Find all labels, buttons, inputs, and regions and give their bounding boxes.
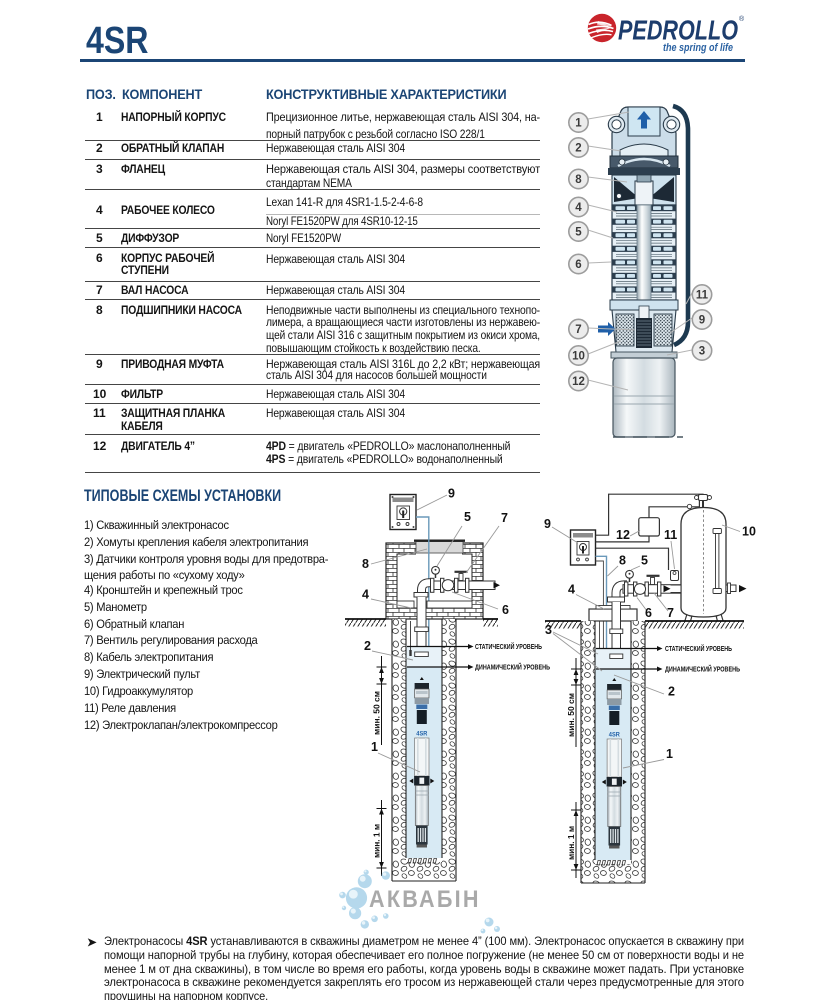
- svg-text:6: 6: [645, 606, 652, 620]
- svg-text:2: 2: [668, 685, 675, 699]
- svg-text:ДИНАМИЧЕСКИЙ УРОВЕНЬ: ДИНАМИЧЕСКИЙ УРОВЕНЬ: [665, 665, 740, 674]
- svg-text:9: 9: [544, 517, 551, 531]
- svg-text:1: 1: [666, 747, 673, 761]
- svg-text:8: 8: [575, 174, 582, 186]
- svg-text:7: 7: [501, 511, 508, 525]
- svg-text:11: 11: [696, 290, 709, 302]
- svg-text:мин. 1 м: мин. 1 м: [372, 824, 382, 858]
- svg-text:11: 11: [664, 528, 677, 542]
- svg-text:1: 1: [575, 118, 582, 130]
- svg-text:2: 2: [575, 143, 581, 155]
- svg-text:4: 4: [362, 588, 369, 602]
- svg-text:7: 7: [575, 324, 581, 336]
- svg-text:9: 9: [448, 487, 455, 501]
- svg-text:8: 8: [362, 557, 369, 571]
- svg-text:5: 5: [464, 510, 471, 524]
- svg-text:10: 10: [572, 351, 585, 363]
- svg-text:мин. 50 см: мин. 50 см: [566, 693, 576, 737]
- svg-text:1: 1: [371, 740, 378, 754]
- svg-text:8: 8: [619, 554, 626, 568]
- svg-text:3: 3: [699, 346, 705, 358]
- svg-text:2: 2: [364, 639, 371, 653]
- svg-text:мин. 50 см: мин. 50 см: [372, 691, 382, 735]
- svg-text:12: 12: [616, 528, 630, 542]
- svg-text:4: 4: [575, 202, 582, 214]
- svg-text:9: 9: [699, 315, 705, 327]
- svg-text:PEDROLLO: PEDROLLO: [618, 15, 738, 46]
- svg-text:СТАТИЧЕСКИЙ УРОВЕНЬ: СТАТИЧЕСКИЙ УРОВЕНЬ: [665, 644, 732, 653]
- svg-text:3: 3: [545, 623, 552, 637]
- svg-text:the spring of life: the spring of life: [663, 42, 733, 54]
- svg-text:12: 12: [572, 376, 585, 388]
- svg-text:мин. 1 м: мин. 1 м: [566, 826, 576, 860]
- svg-text:ДИНАМИЧЕСКИЙ УРОВЕНЬ: ДИНАМИЧЕСКИЙ УРОВЕНЬ: [475, 663, 550, 672]
- svg-text:®: ®: [739, 15, 745, 23]
- svg-text:6: 6: [575, 259, 581, 271]
- svg-text:10: 10: [742, 525, 756, 539]
- svg-text:СТАТИЧЕСКИЙ УРОВЕНЬ: СТАТИЧЕСКИЙ УРОВЕНЬ: [475, 642, 542, 651]
- svg-text:7: 7: [667, 606, 674, 620]
- svg-text:4: 4: [568, 583, 575, 597]
- svg-text:5: 5: [575, 227, 582, 239]
- svg-text:6: 6: [502, 603, 509, 617]
- svg-text:5: 5: [641, 554, 648, 568]
